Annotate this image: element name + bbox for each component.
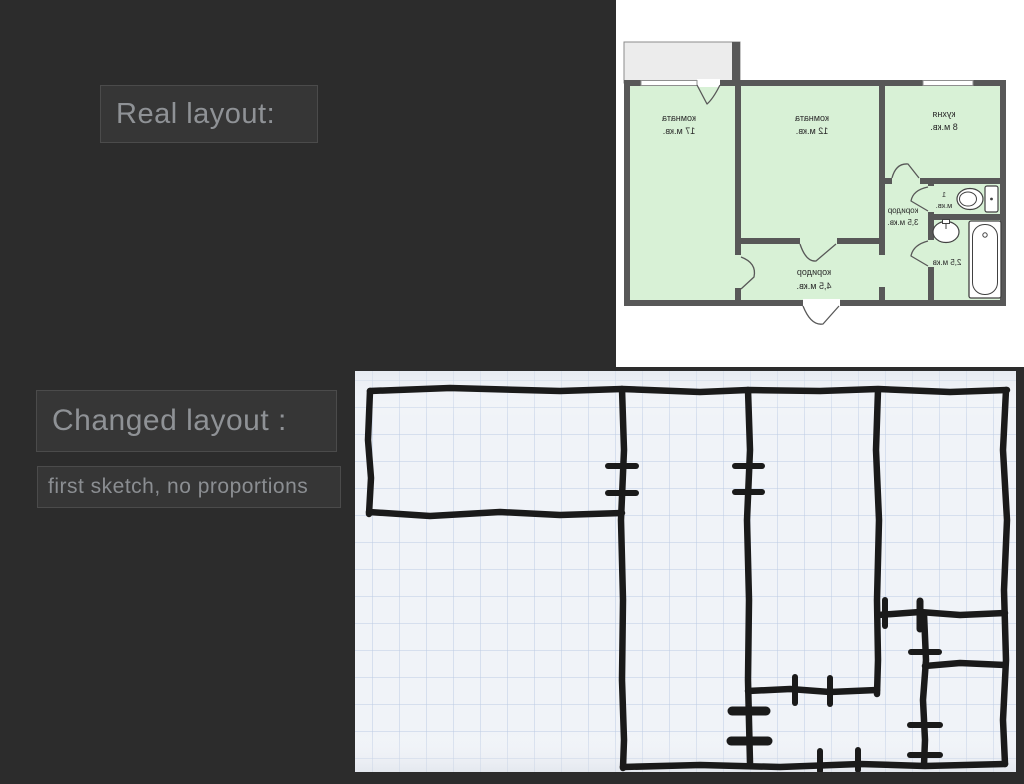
bathtub-fixture (969, 221, 1001, 298)
changed-layout-title: Changed layout : (52, 404, 287, 438)
sketch-wall-bottom (623, 764, 1005, 767)
toilet-area: м.кв. (936, 201, 953, 210)
changed-layout-title-box: Changed layout : (36, 390, 337, 452)
toilet-label: 1 (942, 190, 946, 199)
kitchen-window (923, 81, 973, 86)
corridor45-label: коридор (797, 267, 831, 277)
wall-left (624, 80, 630, 306)
entrance-door (803, 306, 839, 324)
wall-toilet-bottom (928, 214, 1006, 220)
sketch-svg (355, 371, 1016, 772)
sketch-wall-top (370, 388, 1007, 392)
real-layout-title: Real layout: (116, 98, 275, 131)
subtitle-text: first sketch, no proportions (48, 475, 308, 499)
sketch-balcony-bottom (369, 512, 622, 516)
room12-area: 12 м.кв. (796, 126, 828, 136)
sketch-wall-h690 (748, 689, 877, 692)
floorplan-svg: комната 17 м.кв. комната 12 м.кв. кухня … (616, 0, 1024, 367)
sketch-wall-mid2 (876, 390, 879, 694)
slide: { "slide": { "background": "#2c2c2c", "t… (0, 0, 1024, 784)
bath-area: 2,5 м.кв (933, 258, 962, 267)
toilet-fixture (957, 186, 998, 212)
balcony-window (641, 81, 697, 86)
sketch-wall-right (1003, 390, 1007, 764)
corridor45-area: 4,5 м.кв. (797, 281, 832, 291)
balcony (624, 42, 740, 83)
sketch-wall-h665 (925, 663, 1005, 666)
wall-stub (879, 287, 885, 306)
sketch-wall-h613 (878, 612, 1005, 615)
room17-label: комната (662, 113, 696, 123)
wall-kitchen-left (879, 80, 885, 255)
subtitle-box: first sketch, no proportions (37, 466, 341, 508)
kitchen-label: кухня (932, 109, 955, 119)
paper-shading (355, 371, 1016, 772)
real-layout-title-box: Real layout: (100, 85, 318, 143)
room12-label: комната (795, 113, 829, 123)
sketch-photo-panel (355, 371, 1016, 772)
sketch-wall-left (621, 389, 624, 768)
corridor35-area: 3,5 м.кв. (887, 218, 918, 227)
room17-area: 17 м.кв. (663, 126, 695, 136)
sketch-balcony-left (368, 391, 371, 514)
floorplan-image-panel: комната 17 м.кв. комната 12 м.кв. кухня … (616, 0, 1024, 367)
sketch-wall-bath (923, 614, 926, 765)
kitchen-area: 8 м.кв. (930, 122, 957, 132)
corridor35-label: коридор (887, 206, 918, 215)
